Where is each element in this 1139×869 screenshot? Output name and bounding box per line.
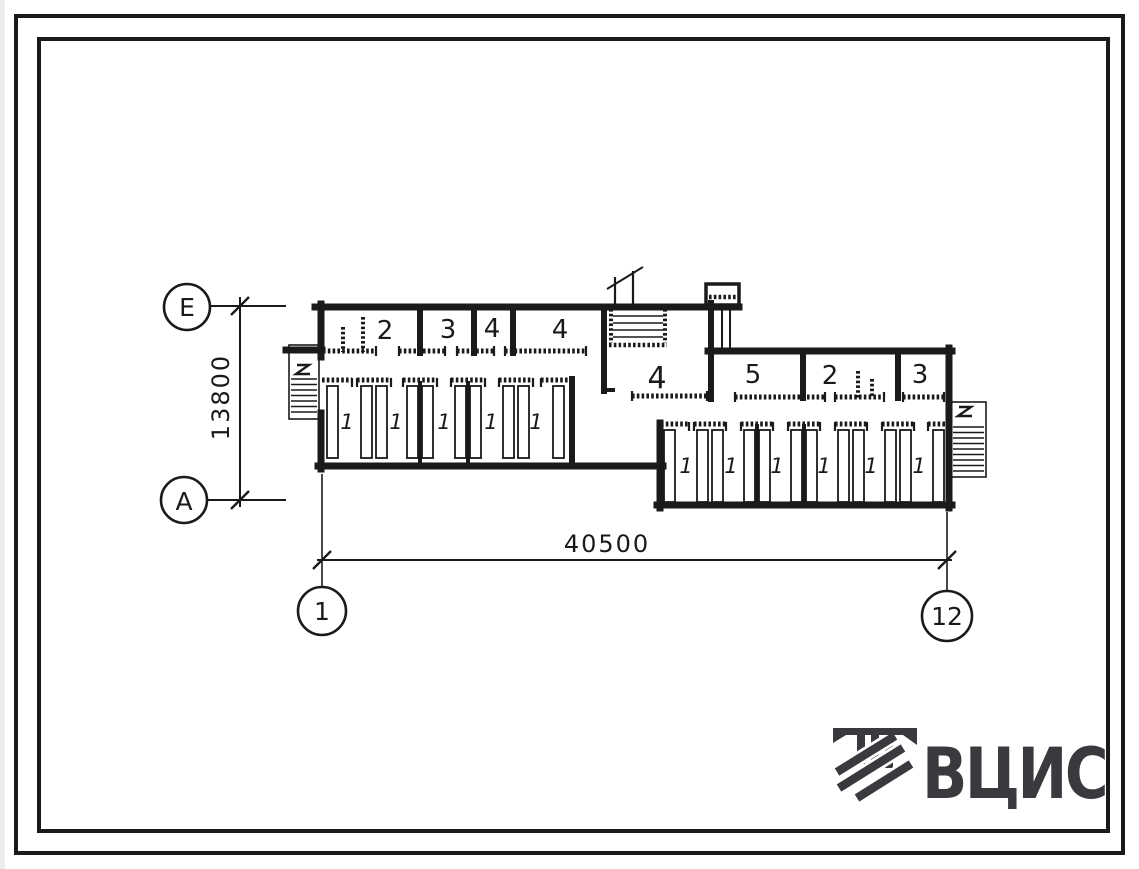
- blueprint-sheet: Е А 13800 40500 1 12: [0, 0, 1139, 869]
- room-label: 5: [745, 360, 762, 390]
- stall-label: 1: [389, 410, 402, 434]
- room-label: 2: [377, 316, 394, 346]
- room-label: 3: [440, 315, 457, 345]
- stall-label: 1: [912, 454, 925, 478]
- stall-label: 1: [437, 410, 450, 434]
- stall-label: 1: [340, 410, 353, 434]
- stair-treads: [953, 427, 984, 471]
- axis-label-row-bottom: А: [175, 487, 192, 516]
- room-label: 4: [647, 361, 666, 396]
- stall-label: 1: [724, 454, 737, 478]
- chimney-stack: [607, 267, 643, 307]
- central-room: 4: [604, 267, 711, 401]
- room-label: 2: [822, 361, 839, 391]
- vcis-logo-text: ВЦИС: [922, 733, 1106, 815]
- stall-label: 1: [864, 454, 877, 478]
- stall-label: 1: [529, 410, 542, 434]
- room-label: 4: [552, 315, 569, 345]
- stall-label: 1: [484, 410, 497, 434]
- stall-label: 1: [770, 454, 783, 478]
- vertical-dimension-value: 13800: [207, 354, 235, 440]
- left-staircase: [286, 345, 322, 419]
- axis-label-col-right: 12: [931, 602, 963, 631]
- room-label: 4: [484, 314, 501, 344]
- horizontal-dimension-value: 40500: [564, 530, 650, 558]
- stall-label: 1: [817, 454, 830, 478]
- stair-treads: [291, 379, 317, 412]
- stall-label: 1: [679, 454, 692, 478]
- room-label: 3: [912, 360, 929, 390]
- right-staircase: [951, 402, 986, 477]
- axis-label-col-left: 1: [314, 597, 330, 626]
- vertical-dimension-group: Е А 13800: [161, 284, 286, 523]
- central-staircase: [609, 309, 667, 345]
- stair-treads: [613, 316, 663, 337]
- entrance-mark-icon: [296, 365, 310, 374]
- left-stall-stub-walls: [322, 378, 571, 387]
- right-stall-hall: 1 1 1 1 1 1: [657, 422, 952, 508]
- vcis-logo: ВЦИС: [833, 728, 1106, 815]
- vcis-logo-icon: [833, 728, 917, 798]
- axis-label-row-top: Е: [179, 293, 195, 322]
- floor-plan-drawing: Е А 13800 40500 1 12: [0, 0, 1139, 869]
- left-stall-hall: 1 1 1 1 1: [322, 378, 571, 464]
- entrance-mark-icon: [958, 407, 972, 416]
- horizontal-dimension-group: 40500 1 12: [298, 474, 972, 641]
